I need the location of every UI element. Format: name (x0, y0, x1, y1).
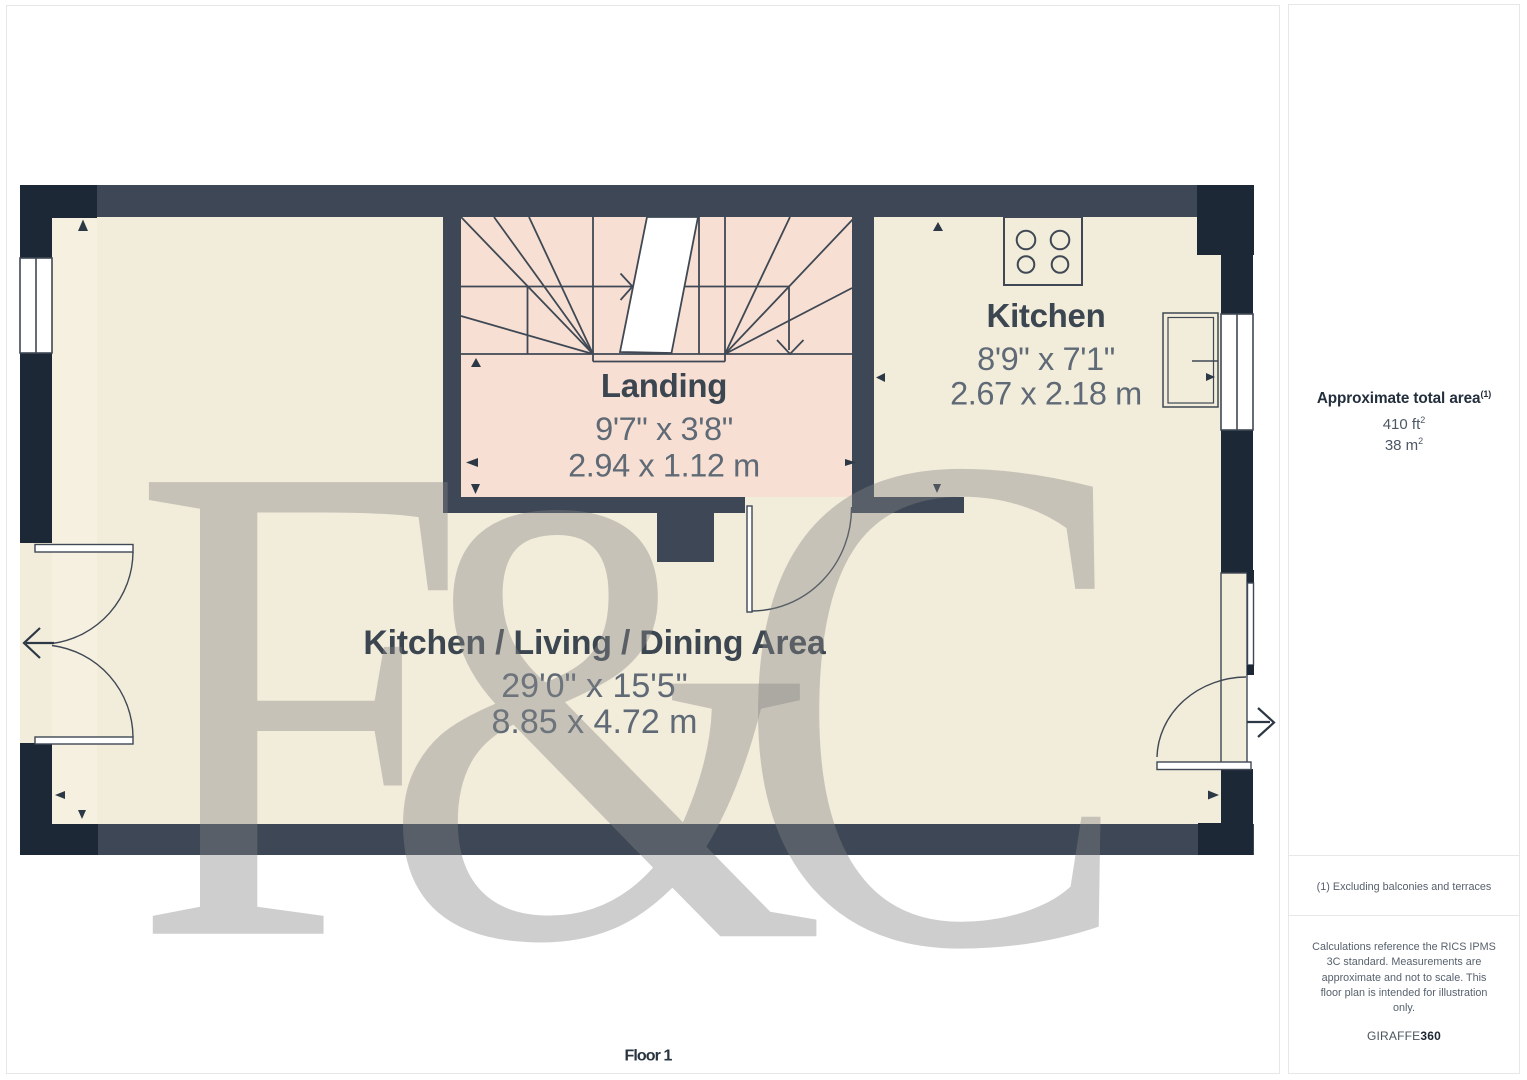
svg-text:C: C (733, 305, 1133, 1080)
svg-text:Floor 1: Floor 1 (624, 1048, 672, 1065)
